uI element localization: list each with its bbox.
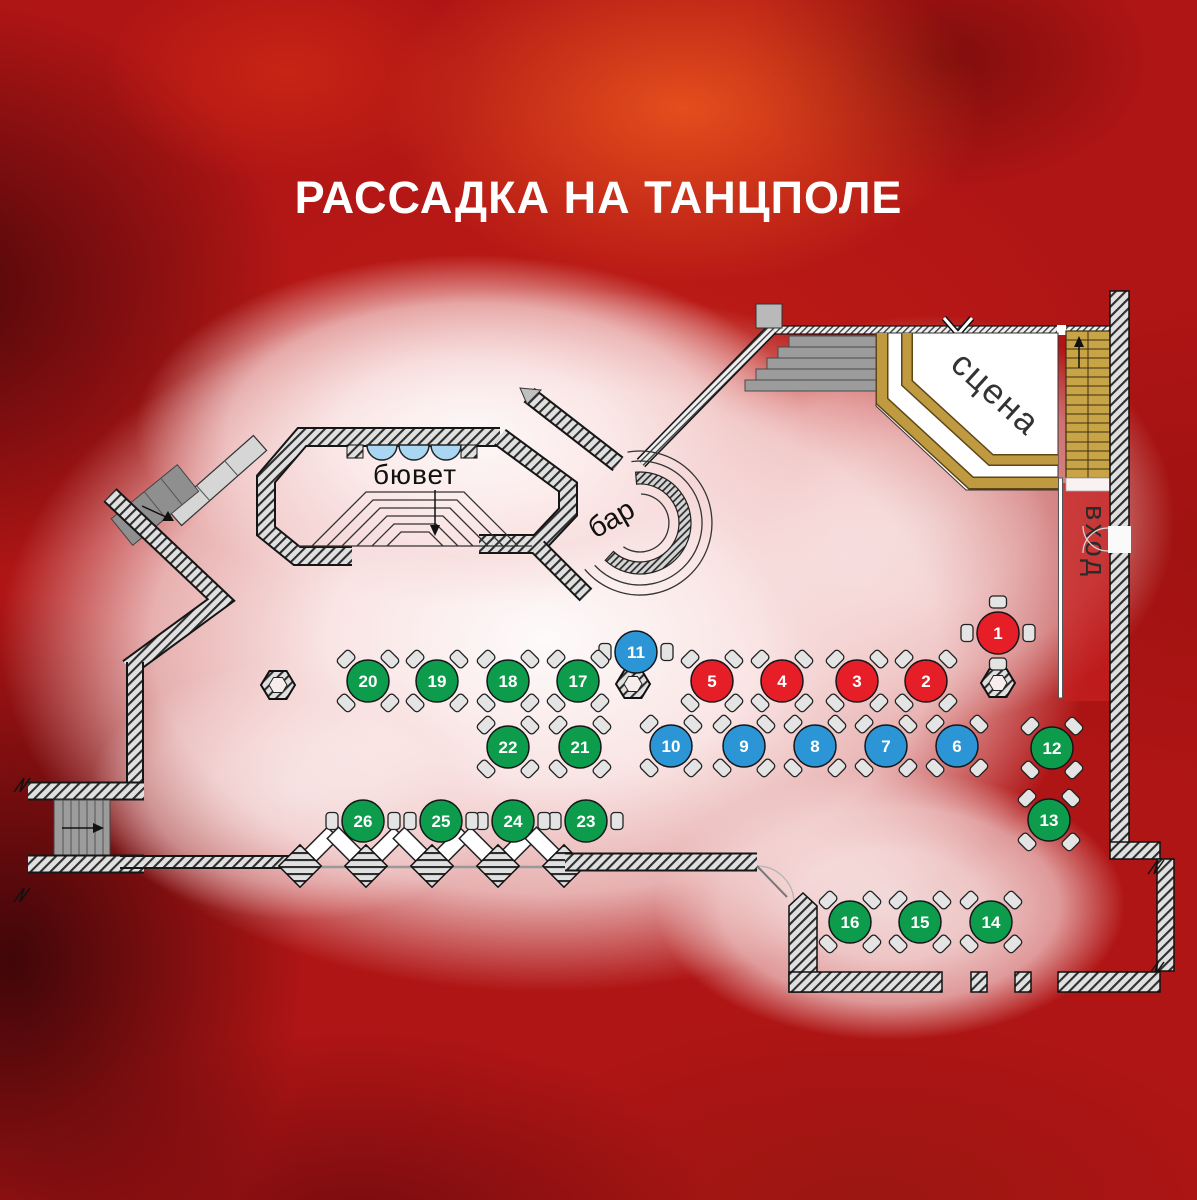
table-number: 1 [993, 624, 1002, 643]
table-number: 3 [852, 672, 861, 691]
table-number: 26 [354, 812, 373, 831]
stairs-lower-left [54, 800, 110, 856]
table-number: 24 [504, 812, 523, 831]
table-number: 10 [662, 737, 681, 756]
chair-icon [326, 813, 338, 830]
pillar-hexagon [261, 671, 295, 699]
table-number: 19 [428, 672, 447, 691]
wall-break-icon [14, 778, 30, 792]
entrance-stairs [1066, 331, 1110, 491]
table-number: 25 [432, 812, 451, 831]
table-number: 11 [627, 643, 645, 662]
seating-plan-page: РАССАДКА НА ТАНЦПОЛЕ [0, 0, 1197, 1200]
table-number: 12 [1043, 739, 1062, 758]
corridor-divider [1059, 478, 1063, 698]
chair-icon [961, 625, 973, 642]
floor-plan-svg: сцена вход [0, 0, 1197, 1200]
chair-icon [611, 813, 623, 830]
chair-icon [388, 813, 400, 830]
table-number: 7 [881, 737, 890, 756]
table-number: 15 [911, 913, 930, 932]
pillar-hexagon [981, 669, 1015, 697]
table-number: 22 [499, 738, 518, 757]
table-number: 4 [777, 672, 787, 691]
table-number: 18 [499, 672, 518, 691]
pillar-hexagon [616, 670, 650, 698]
chair-icon [549, 813, 561, 830]
table-number: 17 [569, 672, 588, 691]
table-number: 2 [921, 672, 930, 691]
table-number: 16 [841, 913, 860, 932]
chair-icon [661, 644, 673, 661]
chair-icon [1023, 625, 1035, 642]
chair-icon [538, 813, 550, 830]
chair-icon [990, 658, 1007, 670]
table-number: 23 [577, 812, 596, 831]
entrance-label: вход [1079, 505, 1111, 579]
table-number: 9 [739, 737, 748, 756]
table-number: 5 [707, 672, 716, 691]
table-number: 21 [571, 738, 590, 757]
chair-icon [466, 813, 478, 830]
table-number: 20 [359, 672, 378, 691]
chair-icon [404, 813, 416, 830]
buffet-label: бювет [373, 459, 457, 490]
sink-icons [367, 445, 461, 460]
table-number: 13 [1040, 811, 1059, 830]
table-number: 8 [810, 737, 819, 756]
wall-break-icon [14, 888, 30, 902]
table-number: 14 [982, 913, 1001, 932]
table-number: 6 [952, 737, 961, 756]
chair-icon [990, 596, 1007, 608]
